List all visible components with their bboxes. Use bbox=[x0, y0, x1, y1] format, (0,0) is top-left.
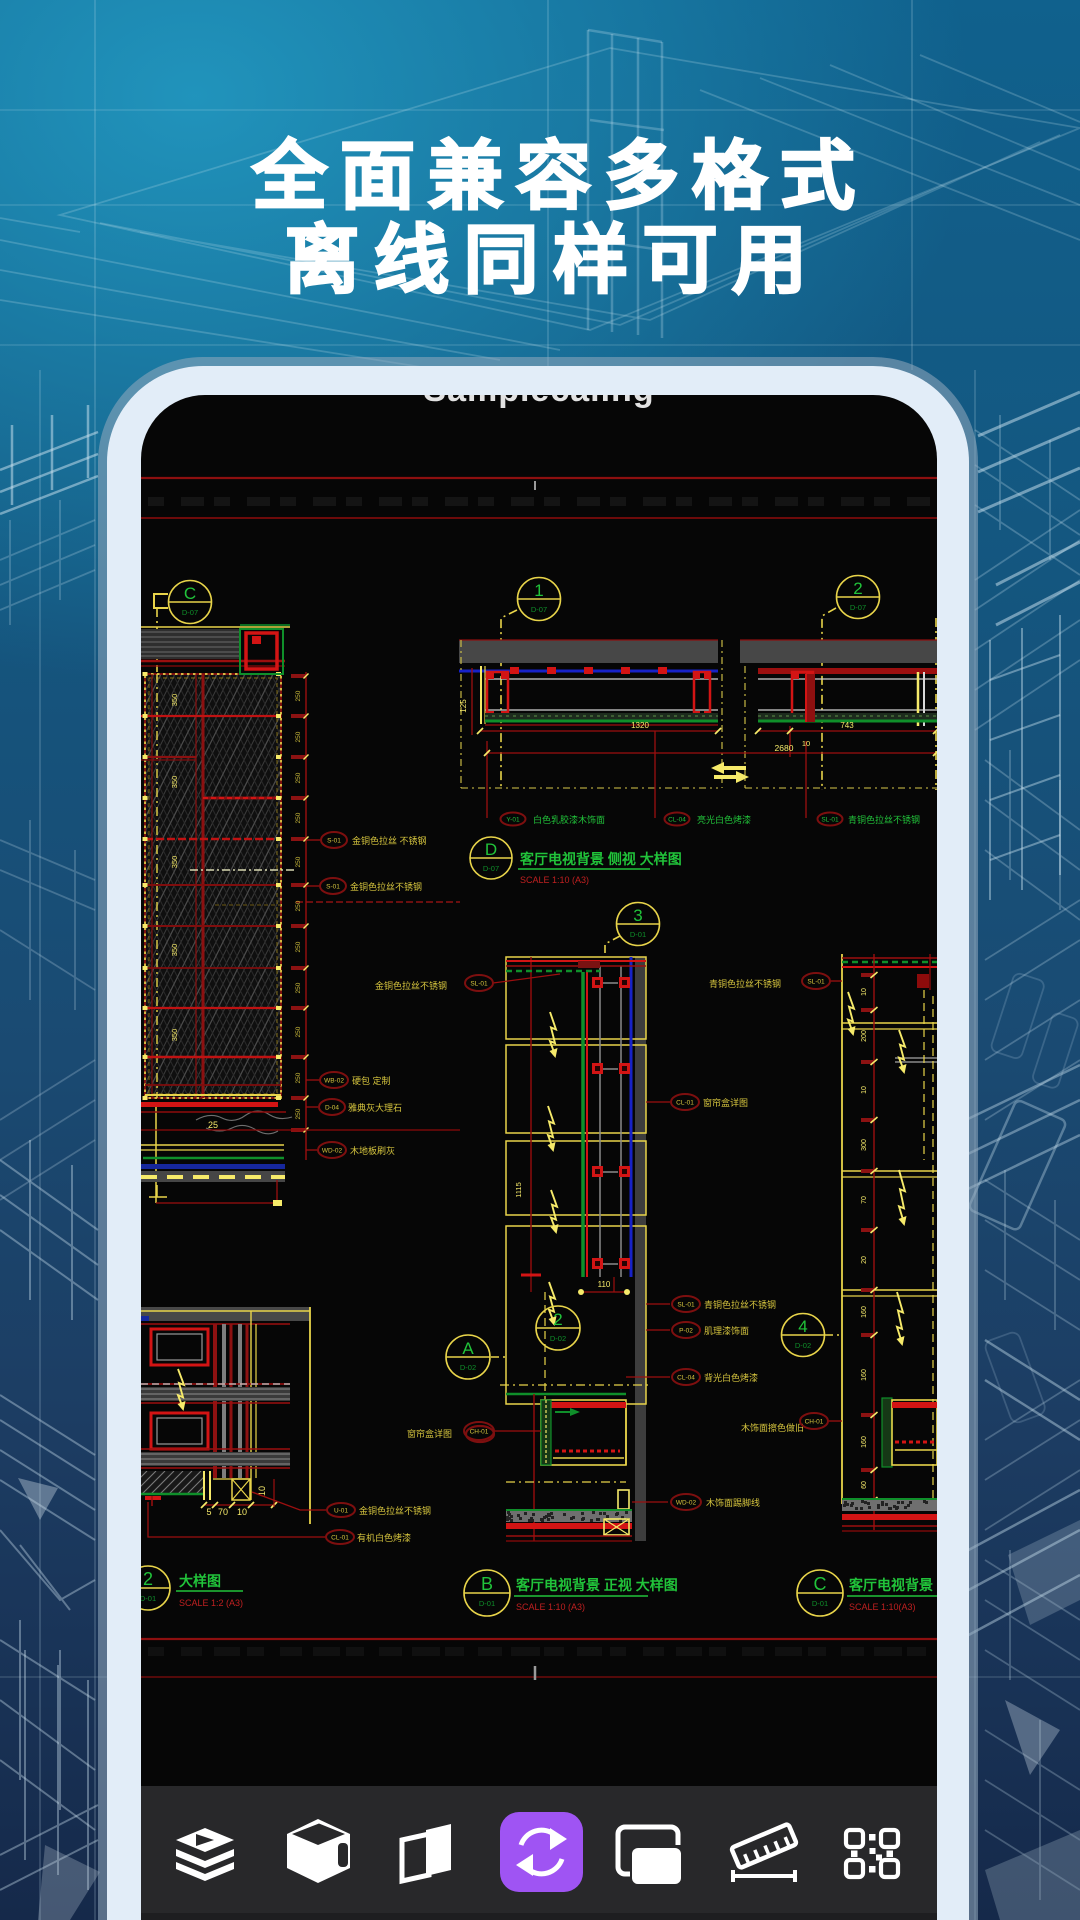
svg-text:1: 1 bbox=[534, 581, 543, 600]
svg-text:300: 300 bbox=[861, 1139, 868, 1151]
svg-text:CH-01: CH-01 bbox=[805, 1419, 824, 1426]
svg-text:SL-01: SL-01 bbox=[677, 1302, 695, 1309]
svg-text:木地板刷灰: 木地板刷灰 bbox=[350, 1145, 395, 1156]
svg-text:D-01: D-01 bbox=[479, 1599, 495, 1608]
svg-text:肌理漆饰面: 肌理漆饰面 bbox=[704, 1325, 749, 1336]
svg-text:金铜色拉丝不锈钢: 金铜色拉丝不锈钢 bbox=[350, 881, 422, 892]
svg-text:250: 250 bbox=[295, 731, 302, 742]
svg-text:350: 350 bbox=[170, 776, 179, 789]
svg-text:D-01: D-01 bbox=[141, 1594, 156, 1603]
svg-text:D-07: D-07 bbox=[483, 864, 499, 873]
svg-text:200: 200 bbox=[861, 1030, 868, 1042]
svg-text:250: 250 bbox=[295, 982, 302, 993]
svg-text:C: C bbox=[814, 1574, 827, 1594]
svg-text:D-01: D-01 bbox=[812, 1599, 828, 1608]
svg-text:110: 110 bbox=[598, 1280, 611, 1289]
svg-text:客厅电视背景 正视 大样图: 客厅电视背景 正视 大样图 bbox=[515, 1577, 678, 1593]
svg-text:250: 250 bbox=[295, 812, 302, 823]
svg-text:160: 160 bbox=[861, 1306, 868, 1318]
svg-text:250: 250 bbox=[295, 941, 302, 952]
svg-text:250: 250 bbox=[295, 1026, 302, 1037]
svg-text:SL-01: SL-01 bbox=[821, 817, 839, 824]
svg-text:CL-04: CL-04 bbox=[677, 1375, 695, 1382]
svg-text:D-02: D-02 bbox=[550, 1334, 566, 1343]
svg-text:10: 10 bbox=[237, 1507, 247, 1517]
svg-text:10: 10 bbox=[861, 988, 868, 996]
svg-text:125: 125 bbox=[459, 699, 468, 713]
svg-text:金铜色拉丝 不锈钢: 金铜色拉丝 不锈钢 bbox=[352, 835, 427, 846]
svg-text:CL-01: CL-01 bbox=[676, 1100, 694, 1107]
svg-text:D-07: D-07 bbox=[531, 605, 547, 614]
svg-text:硬包 定制: 硬包 定制 bbox=[352, 1075, 391, 1086]
svg-text:D-07: D-07 bbox=[850, 603, 866, 612]
svg-text:1115: 1115 bbox=[514, 1182, 523, 1198]
svg-text:60: 60 bbox=[861, 1481, 868, 1489]
svg-text:C: C bbox=[184, 584, 196, 603]
svg-text:窗帘盒详图: 窗帘盒详图 bbox=[703, 1097, 748, 1108]
svg-text:白色乳胶漆木饰面: 白色乳胶漆木饰面 bbox=[533, 814, 605, 825]
svg-text:250: 250 bbox=[295, 1108, 302, 1119]
svg-text:WB-02: WB-02 bbox=[324, 1078, 344, 1085]
svg-text:250: 250 bbox=[295, 1072, 302, 1083]
svg-text:5: 5 bbox=[206, 1507, 211, 1517]
svg-text:A: A bbox=[462, 1339, 474, 1358]
svg-text:250: 250 bbox=[295, 856, 302, 867]
svg-text:B: B bbox=[481, 1574, 493, 1594]
svg-text:SCALE 1:10(A3): SCALE 1:10(A3) bbox=[849, 1602, 916, 1612]
svg-text:窗帘盒详图: 窗帘盒详图 bbox=[407, 1428, 452, 1439]
svg-text:客厅电视背景 侧视2: 客厅电视背景 侧视2 bbox=[848, 1577, 937, 1593]
svg-text:160: 160 bbox=[861, 1369, 868, 1381]
svg-text:70: 70 bbox=[861, 1196, 868, 1204]
svg-text:SL-01: SL-01 bbox=[470, 981, 488, 988]
svg-text:D: D bbox=[485, 840, 497, 859]
svg-text:背光白色烤漆: 背光白色烤漆 bbox=[704, 1372, 758, 1383]
svg-text:250: 250 bbox=[295, 690, 302, 701]
svg-text:亮光白色烤漆: 亮光白色烤漆 bbox=[697, 814, 751, 825]
svg-text:10: 10 bbox=[861, 1086, 868, 1094]
svg-text:350: 350 bbox=[170, 1029, 179, 1042]
svg-text:SL-01: SL-01 bbox=[807, 979, 825, 986]
svg-text:D-02: D-02 bbox=[460, 1363, 476, 1372]
svg-text:木饰面踢脚线: 木饰面踢脚线 bbox=[706, 1497, 760, 1508]
svg-text:D-02: D-02 bbox=[795, 1341, 811, 1350]
svg-text:S-01: S-01 bbox=[327, 838, 341, 845]
svg-text:2: 2 bbox=[553, 1310, 562, 1329]
svg-text:CL-01: CL-01 bbox=[331, 1535, 349, 1542]
svg-text:350: 350 bbox=[170, 694, 179, 707]
svg-text:2: 2 bbox=[143, 1569, 153, 1589]
svg-text:Y-01: Y-01 bbox=[506, 817, 520, 824]
svg-text:青铜色拉丝不锈钢: 青铜色拉丝不锈钢 bbox=[848, 814, 920, 825]
svg-text:D-04: D-04 bbox=[325, 1105, 339, 1112]
svg-text:金铜色拉丝不锈钢: 金铜色拉丝不锈钢 bbox=[359, 1505, 431, 1516]
svg-text:10: 10 bbox=[802, 739, 810, 748]
svg-text:客厅电视背景 侧视 大样图: 客厅电视背景 侧视 大样图 bbox=[519, 851, 682, 867]
svg-text:2680: 2680 bbox=[775, 743, 794, 753]
svg-text:大样图: 大样图 bbox=[179, 1573, 221, 1589]
svg-text:20: 20 bbox=[861, 1256, 868, 1264]
svg-text:P-02: P-02 bbox=[679, 1328, 693, 1335]
svg-text:D-07: D-07 bbox=[182, 608, 198, 617]
svg-text:160: 160 bbox=[861, 1436, 868, 1448]
svg-text:青铜色拉丝不锈钢: 青铜色拉丝不锈钢 bbox=[704, 1299, 776, 1310]
svg-text:WD-02: WD-02 bbox=[676, 1500, 697, 1507]
svg-text:350: 350 bbox=[170, 944, 179, 957]
svg-text:SCALE 1:2 (A3): SCALE 1:2 (A3) bbox=[179, 1598, 243, 1608]
svg-text:743: 743 bbox=[840, 721, 854, 730]
svg-text:2: 2 bbox=[853, 579, 862, 598]
svg-text:250: 250 bbox=[295, 772, 302, 783]
svg-text:D-01: D-01 bbox=[630, 930, 646, 939]
svg-text:SCALE 1:10 (A3): SCALE 1:10 (A3) bbox=[520, 875, 589, 885]
svg-text:70: 70 bbox=[218, 1507, 228, 1517]
svg-text:CL-04: CL-04 bbox=[668, 817, 686, 824]
svg-text:S-01: S-01 bbox=[326, 884, 340, 891]
svg-text:WD-02: WD-02 bbox=[322, 1148, 343, 1155]
svg-text:雅典灰大理石: 雅典灰大理石 bbox=[348, 1102, 402, 1113]
svg-text:有机白色烤漆: 有机白色烤漆 bbox=[357, 1532, 411, 1543]
svg-text:CH-01: CH-01 bbox=[470, 1429, 489, 1436]
svg-text:25: 25 bbox=[208, 1120, 218, 1130]
svg-text:U-01: U-01 bbox=[334, 1508, 348, 1515]
svg-text:木饰面擦色做旧: 木饰面擦色做旧 bbox=[741, 1422, 804, 1433]
svg-text:SCALE 1:10 (A3): SCALE 1:10 (A3) bbox=[516, 1602, 585, 1612]
svg-text:3: 3 bbox=[633, 906, 642, 925]
svg-text:350: 350 bbox=[170, 856, 179, 869]
svg-text:1320: 1320 bbox=[631, 721, 649, 730]
svg-text:青铜色拉丝不锈钢: 青铜色拉丝不锈钢 bbox=[709, 978, 781, 989]
svg-text:250: 250 bbox=[295, 900, 302, 911]
svg-text:金铜色拉丝不锈钢: 金铜色拉丝不锈钢 bbox=[375, 980, 447, 991]
svg-text:4: 4 bbox=[798, 1317, 807, 1336]
